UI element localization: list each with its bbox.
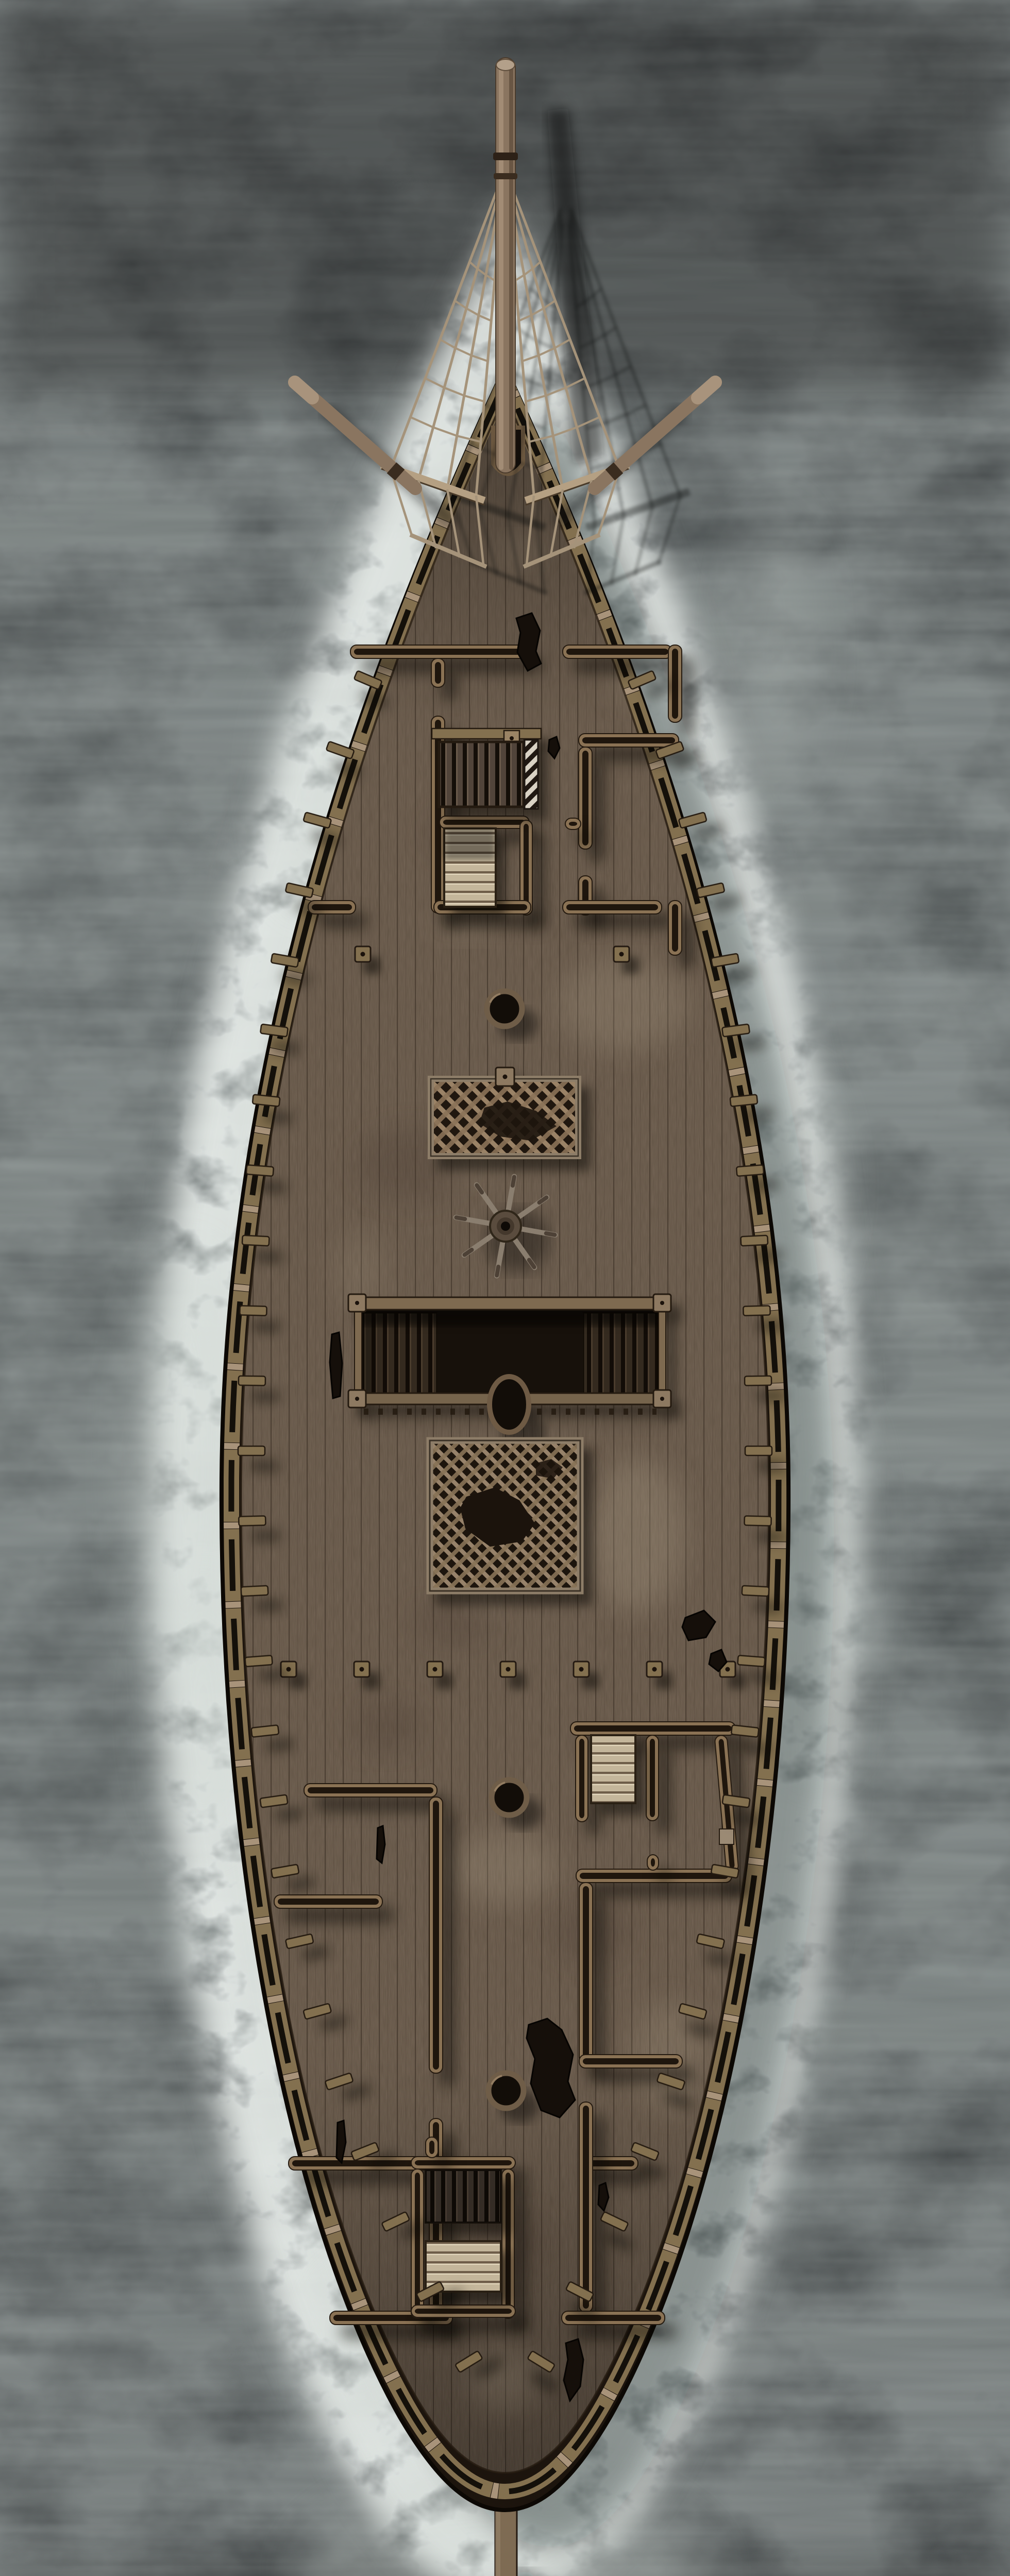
- barred-grate: [439, 742, 524, 807]
- deck-stain-light: [557, 958, 691, 1051]
- rail-cleat: [736, 1165, 764, 1176]
- deck-damage-hole: [330, 1332, 342, 1398]
- main-cargo-grate: [430, 1440, 580, 1591]
- wall-segment: [350, 645, 532, 658]
- oval-deck-pipe: [490, 1377, 529, 1432]
- wall-segment: [565, 818, 581, 829]
- rail-cleat: [245, 1655, 272, 1667]
- battle-map: [0, 0, 1010, 2576]
- wall-gap-block: [719, 1829, 734, 1844]
- fore-staircase: [444, 828, 496, 907]
- rail-cleat: [246, 1165, 274, 1176]
- striped-hazard-post: [525, 740, 538, 809]
- mooring-bitt-post: [355, 946, 371, 962]
- wall-segment: [429, 1797, 443, 2073]
- bowsprit: [493, 58, 518, 473]
- rail-cleat: [238, 1446, 265, 1455]
- rail-cleat: [742, 1586, 769, 1597]
- wall-segment: [411, 2305, 515, 2317]
- rail-cleat: [740, 1235, 768, 1246]
- wall-segment: [579, 747, 592, 849]
- wall-segment: [576, 1869, 732, 1883]
- hatch-frame-bar: [432, 728, 541, 739]
- wall-segment: [579, 734, 679, 747]
- deck-stain-light: [446, 1832, 559, 1904]
- rail-cleat: [737, 1655, 765, 1667]
- rail-cleat: [252, 1094, 280, 1106]
- wall-segment: [647, 1855, 659, 1870]
- deck-stain-dark: [412, 1602, 495, 1643]
- wall-segment: [274, 1895, 382, 1908]
- railing-top: [356, 1297, 665, 1310]
- mooring-bitt-post: [500, 1662, 516, 1677]
- wall-segment: [563, 901, 662, 914]
- bowsprit-band: [494, 173, 517, 179]
- wall-segment: [668, 901, 682, 955]
- rail-cleat: [239, 1516, 265, 1526]
- wall-segment: [579, 1883, 593, 2063]
- wall-segment: [440, 816, 529, 828]
- rail-cleat: [744, 1516, 771, 1526]
- mooring-bitt-post: [614, 946, 629, 962]
- wall-segment: [411, 2157, 515, 2169]
- staircase-steps: [591, 1735, 635, 1803]
- bowsprit-band: [493, 152, 518, 160]
- rail-cleat: [745, 1376, 771, 1386]
- rail-cleat: [743, 1306, 770, 1315]
- rail-cleat: [239, 1376, 265, 1386]
- wall-segment: [570, 1722, 735, 1735]
- wall-segment: [668, 645, 682, 722]
- aft-staircase: [591, 1735, 635, 1803]
- wall-segment: [576, 1735, 588, 1822]
- mooring-bitt-post: [574, 1662, 589, 1677]
- mooring-bitt-post: [281, 1662, 296, 1677]
- mooring-bitt-post: [647, 1662, 662, 1677]
- wall-segment: [304, 1784, 437, 1797]
- bowsprit-cap: [496, 59, 515, 71]
- wall-segment: [563, 645, 672, 658]
- wall-segment: [502, 2169, 514, 2318]
- ship-map-scene: [0, 0, 1010, 2576]
- wall-segment: [431, 658, 445, 687]
- wall-segment: [579, 2055, 682, 2068]
- rail-cleat: [242, 1235, 270, 1246]
- rail-cleat: [241, 1586, 268, 1597]
- wall-segment: [579, 2102, 593, 2312]
- rail-cleat: [745, 1446, 772, 1455]
- mooring-bitt-post: [354, 1662, 369, 1677]
- deck-stain-light: [587, 1458, 685, 1613]
- wall-segment: [646, 1735, 659, 1821]
- wall-segment: [308, 901, 356, 914]
- windlass-grate: [431, 1067, 578, 1156]
- rail-cleat: [240, 1306, 266, 1315]
- mooring-bitt-post: [427, 1662, 443, 1677]
- wall-segment: [426, 2137, 438, 2158]
- deck-stain-dark: [350, 1700, 423, 1752]
- rail-cleat: [730, 1094, 758, 1106]
- wall-segment: [562, 2311, 665, 2325]
